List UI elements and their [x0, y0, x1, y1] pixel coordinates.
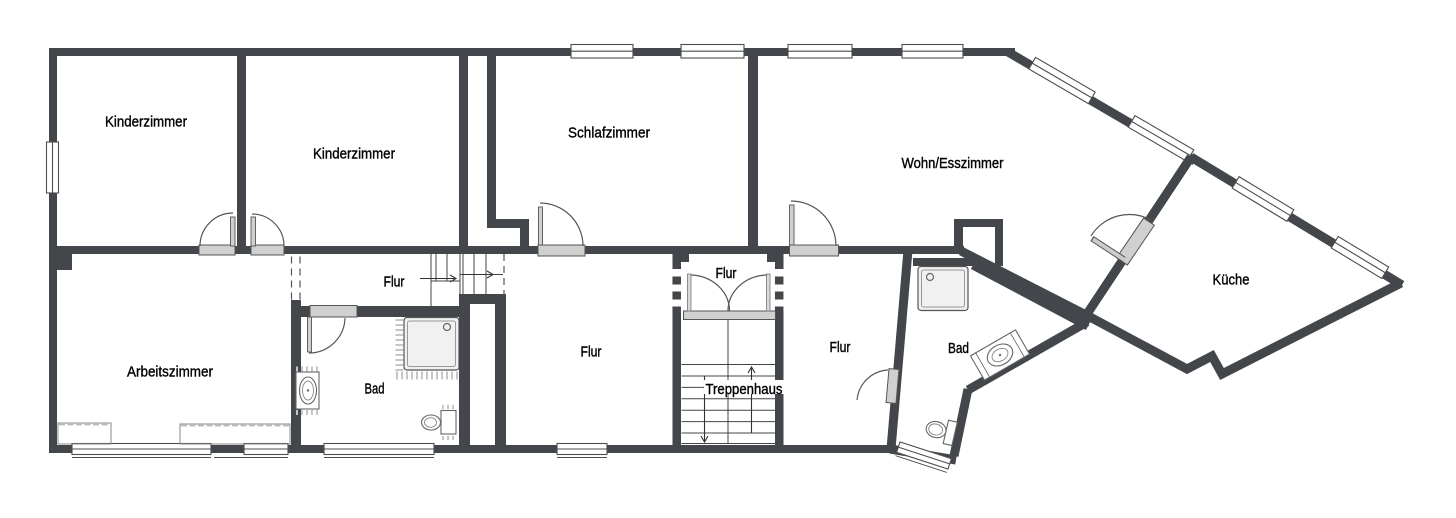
svg-text:Bad: Bad — [365, 381, 385, 398]
svg-text:Flur: Flur — [581, 344, 602, 361]
svg-text:Arbeitszimmer: Arbeitszimmer — [127, 364, 213, 381]
svg-text:Schlafzimmer: Schlafzimmer — [568, 125, 650, 142]
svg-text:Bad: Bad — [948, 340, 969, 357]
svg-text:Kinderzimmer: Kinderzimmer — [313, 146, 395, 163]
svg-text:Kinderzimmer: Kinderzimmer — [105, 114, 187, 131]
svg-text:Flur: Flur — [716, 265, 737, 282]
svg-text:Flur: Flur — [830, 339, 851, 356]
svg-text:Küche: Küche — [1213, 272, 1250, 289]
svg-text:Wohn/Esszimmer: Wohn/Esszimmer — [902, 155, 1004, 172]
svg-text:Treppenhaus: Treppenhaus — [706, 381, 783, 398]
svg-text:Flur: Flur — [384, 274, 405, 291]
